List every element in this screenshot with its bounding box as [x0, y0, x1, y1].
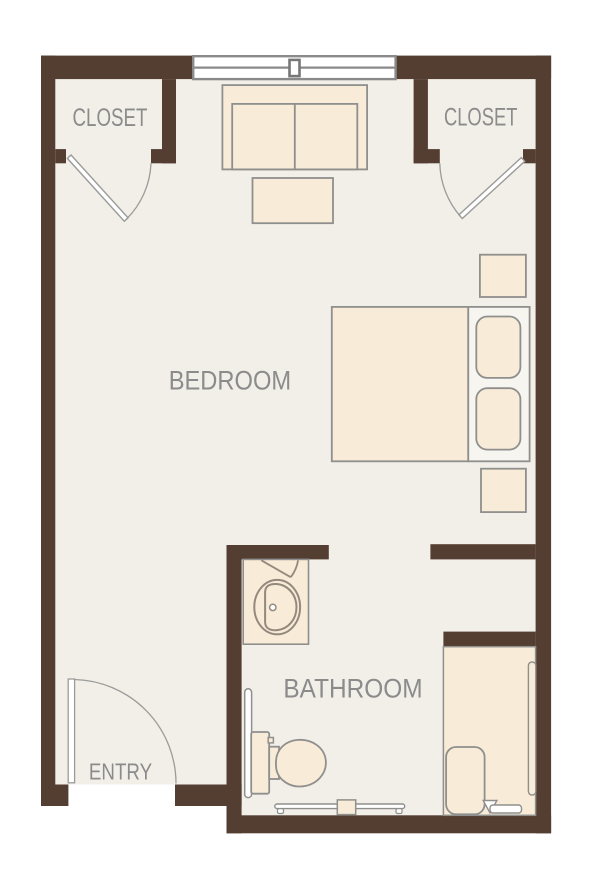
- svg-text:CLOSET: CLOSET: [444, 103, 517, 131]
- svg-text:ENTRY: ENTRY: [89, 760, 152, 785]
- svg-text:BEDROOM: BEDROOM: [169, 366, 291, 396]
- svg-text:BATHROOM: BATHROOM: [283, 674, 422, 703]
- svg-text:CLOSET: CLOSET: [73, 103, 148, 131]
